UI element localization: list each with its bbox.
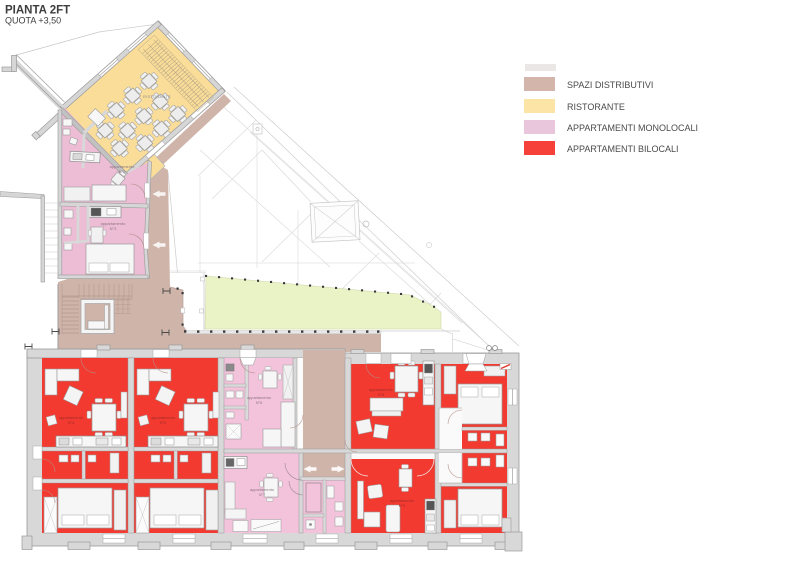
svg-text:N°9: N°9 <box>399 503 406 508</box>
svg-text:RISTORANTE: RISTORANTE <box>143 94 171 99</box>
svg-text:RISTORANTE: RISTORANTE <box>567 102 625 112</box>
svg-text:N°5: N°5 <box>160 420 167 425</box>
svg-text:QUOTA +3,50: QUOTA +3,50 <box>5 16 61 26</box>
svg-text:APPARTAMENTI MONOLOCALI: APPARTAMENTI MONOLOCALI <box>567 123 698 133</box>
svg-text:N°8: N°8 <box>378 392 385 397</box>
svg-text:N°2: N°2 <box>119 169 126 174</box>
svg-text:N°3: N°3 <box>110 226 117 231</box>
svg-text:APPARTAMENTI BILOCALI: APPARTAMENTI BILOCALI <box>567 144 679 154</box>
svg-text:N°7: N°7 <box>259 492 266 497</box>
svg-text:SPAZI DISTRIBUTIVI: SPAZI DISTRIBUTIVI <box>567 80 653 90</box>
svg-text:N°4: N°4 <box>68 420 75 425</box>
svg-text:N°6: N°6 <box>256 400 263 405</box>
